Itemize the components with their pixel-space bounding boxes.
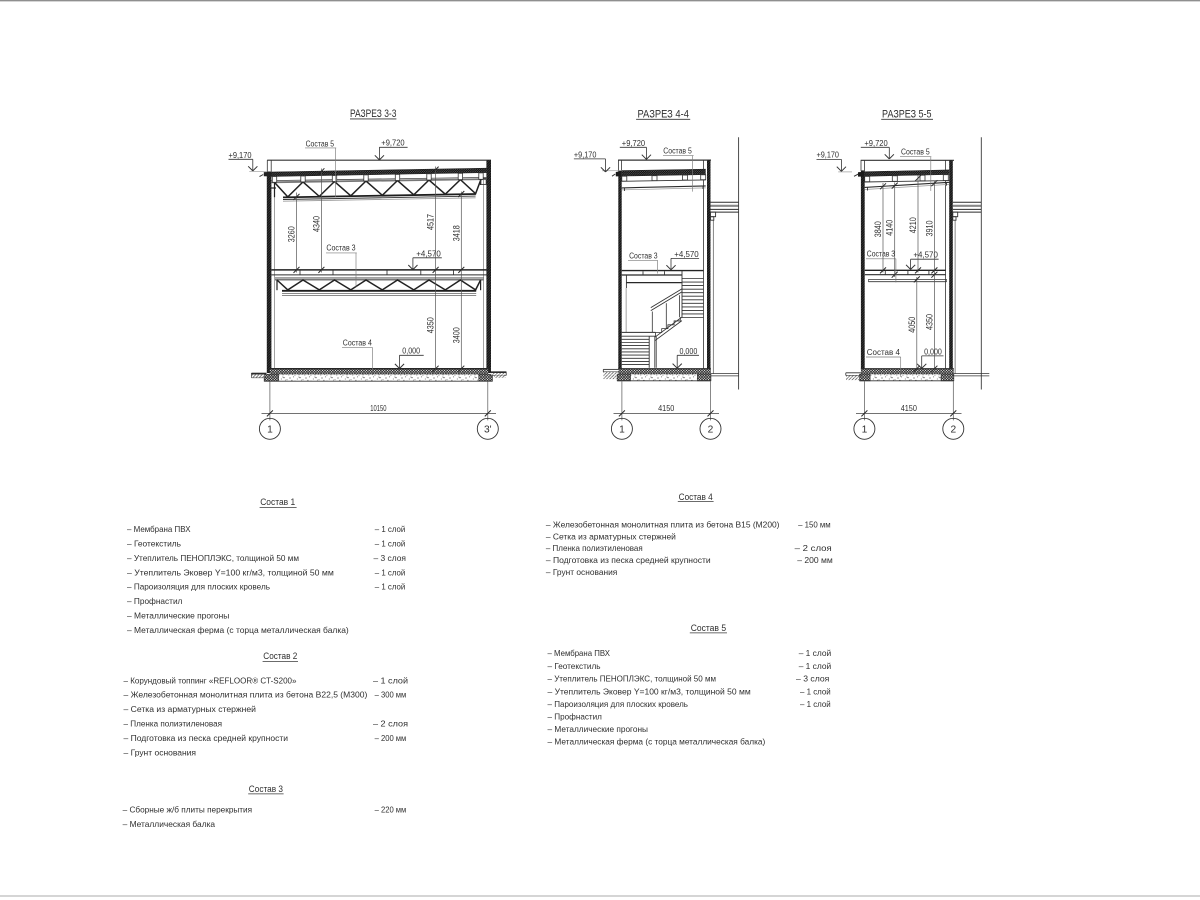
svg-text:Состав 3: Состав 3 [249,784,283,794]
svg-text:4340: 4340 [311,216,321,232]
svg-text:4210: 4210 [908,217,918,233]
svg-text:3418: 3418 [451,225,461,241]
svg-text:Состав 3: Состав 3 [867,248,895,258]
svg-text:2: 2 [950,424,956,435]
svg-text:3840: 3840 [873,221,883,237]
svg-text:Состав 3: Состав 3 [326,242,355,252]
svg-text:Состав 5: Состав 5 [901,146,930,156]
svg-text:– 1 слой: – 1 слой [375,539,406,549]
svg-text:4150: 4150 [658,404,675,413]
svg-text:– Грунт основания: – Грунт основания [124,747,197,757]
svg-text:1: 1 [267,424,273,435]
svg-text:– Профнастил: – Профнастил [127,596,182,606]
svg-text:– Мембрана ПВХ: – Мембрана ПВХ [548,648,611,658]
svg-text:– 2 слоя: – 2 слоя [373,719,408,729]
svg-text:Состав 5: Состав 5 [691,623,726,633]
svg-text:– Утеплитель Эковер Y=100 кг/м: – Утеплитель Эковер Y=100 кг/м3, толщино… [127,567,334,577]
svg-text:– Металлические прогоны: – Металлические прогоны [127,611,229,621]
svg-text:10150: 10150 [370,404,387,413]
svg-text:– Профнастил: – Профнастил [548,711,602,721]
svg-text:– Пароизоляция для плоских кро: – Пароизоляция для плоских кровель [548,699,689,709]
svg-text:– 200 мм: – 200 мм [375,733,407,743]
svg-text:– Корундовый топпинг «REFLOOR®: – Корундовый топпинг «REFLOOR® CT-S200» [124,675,297,685]
svg-text:– Грунт основания: – Грунт основания [546,567,618,577]
svg-text:– Пленка полиэтиленовая: – Пленка полиэтиленовая [124,719,223,729]
svg-text:4350: 4350 [426,317,436,333]
svg-text:Состав 5: Состав 5 [306,138,335,148]
svg-text:– Сетка из арматурных стержней: – Сетка из арматурных стержней [546,531,676,541]
svg-text:– 220 мм: – 220 мм [375,805,407,815]
svg-text:3400: 3400 [451,327,461,343]
svg-text:– Пленка полиэтиленовая: – Пленка полиэтиленовая [546,543,643,553]
svg-text:Состав 4: Состав 4 [679,492,713,502]
svg-text:3': 3' [484,424,492,435]
svg-text:– Геотекстиль: – Геотекстиль [548,661,601,671]
svg-text:– 1 слой: – 1 слой [373,675,408,685]
svg-text:0,000: 0,000 [680,347,698,356]
svg-text:– 1 слой: – 1 слой [375,582,406,592]
svg-text:РАЗРЕЗ 4-4: РАЗРЕЗ 4-4 [637,108,689,120]
svg-text:– 1 слой: – 1 слой [800,687,831,697]
svg-text:– Металлические прогоны: – Металлические прогоны [548,724,649,734]
svg-text:– 2 слоя: – 2 слоя [795,543,832,553]
svg-text:4350: 4350 [924,314,934,330]
svg-text:– Металлическая балка: – Металлическая балка [123,819,216,829]
svg-text:– Сборные ж/б плиты перекрытия: – Сборные ж/б плиты перекрытия [123,805,253,815]
svg-text:– Геотекстиль: – Геотекстиль [127,539,181,549]
svg-text:4517: 4517 [426,214,436,230]
svg-text:– 3 слоя: – 3 слоя [374,553,407,563]
svg-text:+9,170: +9,170 [229,151,253,160]
svg-text:– Утеплитель Эковер Y=100 кг/м: – Утеплитель Эковер Y=100 кг/м3, толщино… [548,687,751,697]
svg-text:– Металлическая ферма (с торца: – Металлическая ферма (с торца металличе… [127,625,349,635]
svg-text:3910: 3910 [924,221,934,237]
svg-text:0,000: 0,000 [402,347,420,356]
svg-text:– 1 слой: – 1 слой [799,661,832,671]
svg-text:Состав 3: Состав 3 [629,250,658,260]
svg-text:– Железобетонная монолитная п: – Железобетонная монолитная плита из бет… [124,690,368,700]
svg-text:3260: 3260 [287,226,297,242]
svg-text:+4,570: +4,570 [416,250,441,259]
svg-text:– 150 мм: – 150 мм [798,519,831,529]
svg-text:+9,170: +9,170 [817,150,840,159]
svg-text:Состав 2: Состав 2 [263,651,297,661]
svg-text:+4,570: +4,570 [674,250,699,259]
svg-text:Состав 1: Состав 1 [260,497,295,507]
svg-text:4050: 4050 [907,317,917,333]
svg-text:Состав 4: Состав 4 [867,347,900,357]
svg-text:РАЗРЕЗ 5-5: РАЗРЕЗ 5-5 [882,108,932,120]
svg-text:– 1 слой: – 1 слой [375,567,406,577]
svg-text:+9,720: +9,720 [381,139,405,148]
svg-text:0,000: 0,000 [924,347,942,356]
svg-text:– 3 слоя: – 3 слоя [796,673,830,683]
svg-text:– Железобетонная монолитная п: – Железобетонная монолитная плита из бет… [546,519,780,529]
svg-text:+9,720: +9,720 [864,139,888,148]
svg-text:– 300 мм: – 300 мм [375,690,407,700]
svg-text:– Утеплитель ПЕНОПЛЭКС, толщин: – Утеплитель ПЕНОПЛЭКС, толщиной 50 мм [548,673,717,683]
svg-text:+9,720: +9,720 [622,139,646,148]
svg-text:2: 2 [708,424,714,435]
svg-text:– Подготовка из песка средней: – Подготовка из песка средней крупности [124,733,289,743]
svg-text:РАЗРЕЗ 3-3: РАЗРЕЗ 3-3 [350,108,397,120]
svg-text:Состав 4: Состав 4 [343,338,372,348]
svg-text:– Пароизоляция для плоских кро: – Пароизоляция для плоских кровель [127,582,270,592]
svg-text:– Подготовка из песка средней: – Подготовка из песка средней крупности [546,555,711,565]
svg-text:– 200 мм: – 200 мм [797,555,833,565]
svg-text:– Металлическая ферма (с торца: – Металлическая ферма (с торца металличе… [548,737,766,747]
svg-text:– Сетка из арматурных стержней: – Сетка из арматурных стержней [124,704,257,714]
svg-text:Состав 5: Состав 5 [663,145,692,155]
svg-text:1: 1 [619,424,625,435]
svg-text:– Мембрана ПВХ: – Мембрана ПВХ [127,524,191,534]
svg-text:4140: 4140 [885,220,895,236]
svg-text:1: 1 [862,424,868,435]
svg-text:– 1 слой: – 1 слой [800,699,831,709]
svg-text:– 1 слой: – 1 слой [375,524,406,534]
svg-text:4150: 4150 [901,404,918,413]
svg-text:– 1 слой: – 1 слой [799,648,832,658]
svg-text:+9,170: +9,170 [574,150,597,159]
svg-text:– Утеплитель ПЕНОПЛЭКС, толщин: – Утеплитель ПЕНОПЛЭКС, толщиной 50 мм [127,553,299,563]
